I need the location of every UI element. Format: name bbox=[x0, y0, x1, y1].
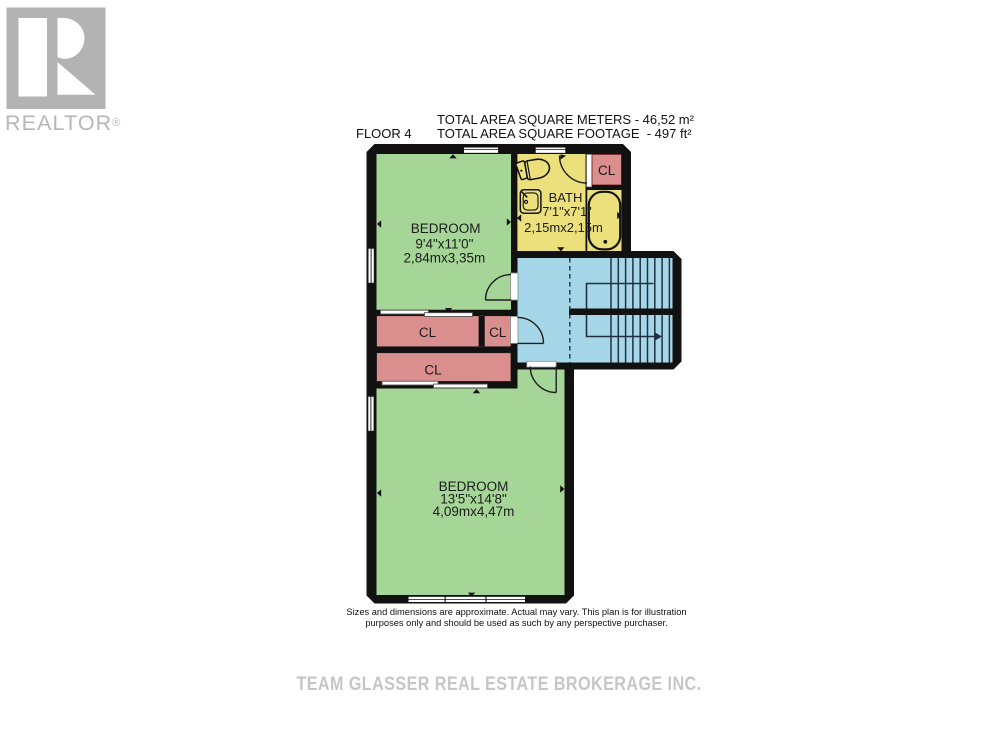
svg-text:9'4"x11'0": 9'4"x11'0" bbox=[415, 237, 473, 252]
svg-text:CL: CL bbox=[424, 363, 442, 378]
svg-text:2,84mx3,35m: 2,84mx3,35m bbox=[404, 251, 486, 266]
svg-text:4,09mx4,47m: 4,09mx4,47m bbox=[433, 504, 515, 519]
svg-text:CL: CL bbox=[489, 325, 507, 340]
svg-text:BEDROOM: BEDROOM bbox=[411, 221, 481, 236]
svg-text:CL: CL bbox=[419, 325, 437, 340]
svg-text:7'1"x7'1": 7'1"x7'1" bbox=[542, 204, 592, 219]
svg-text:2,15mx2,15m: 2,15mx2,15m bbox=[524, 220, 603, 235]
svg-text:BATH: BATH bbox=[549, 190, 583, 205]
svg-text:CL: CL bbox=[598, 163, 616, 178]
